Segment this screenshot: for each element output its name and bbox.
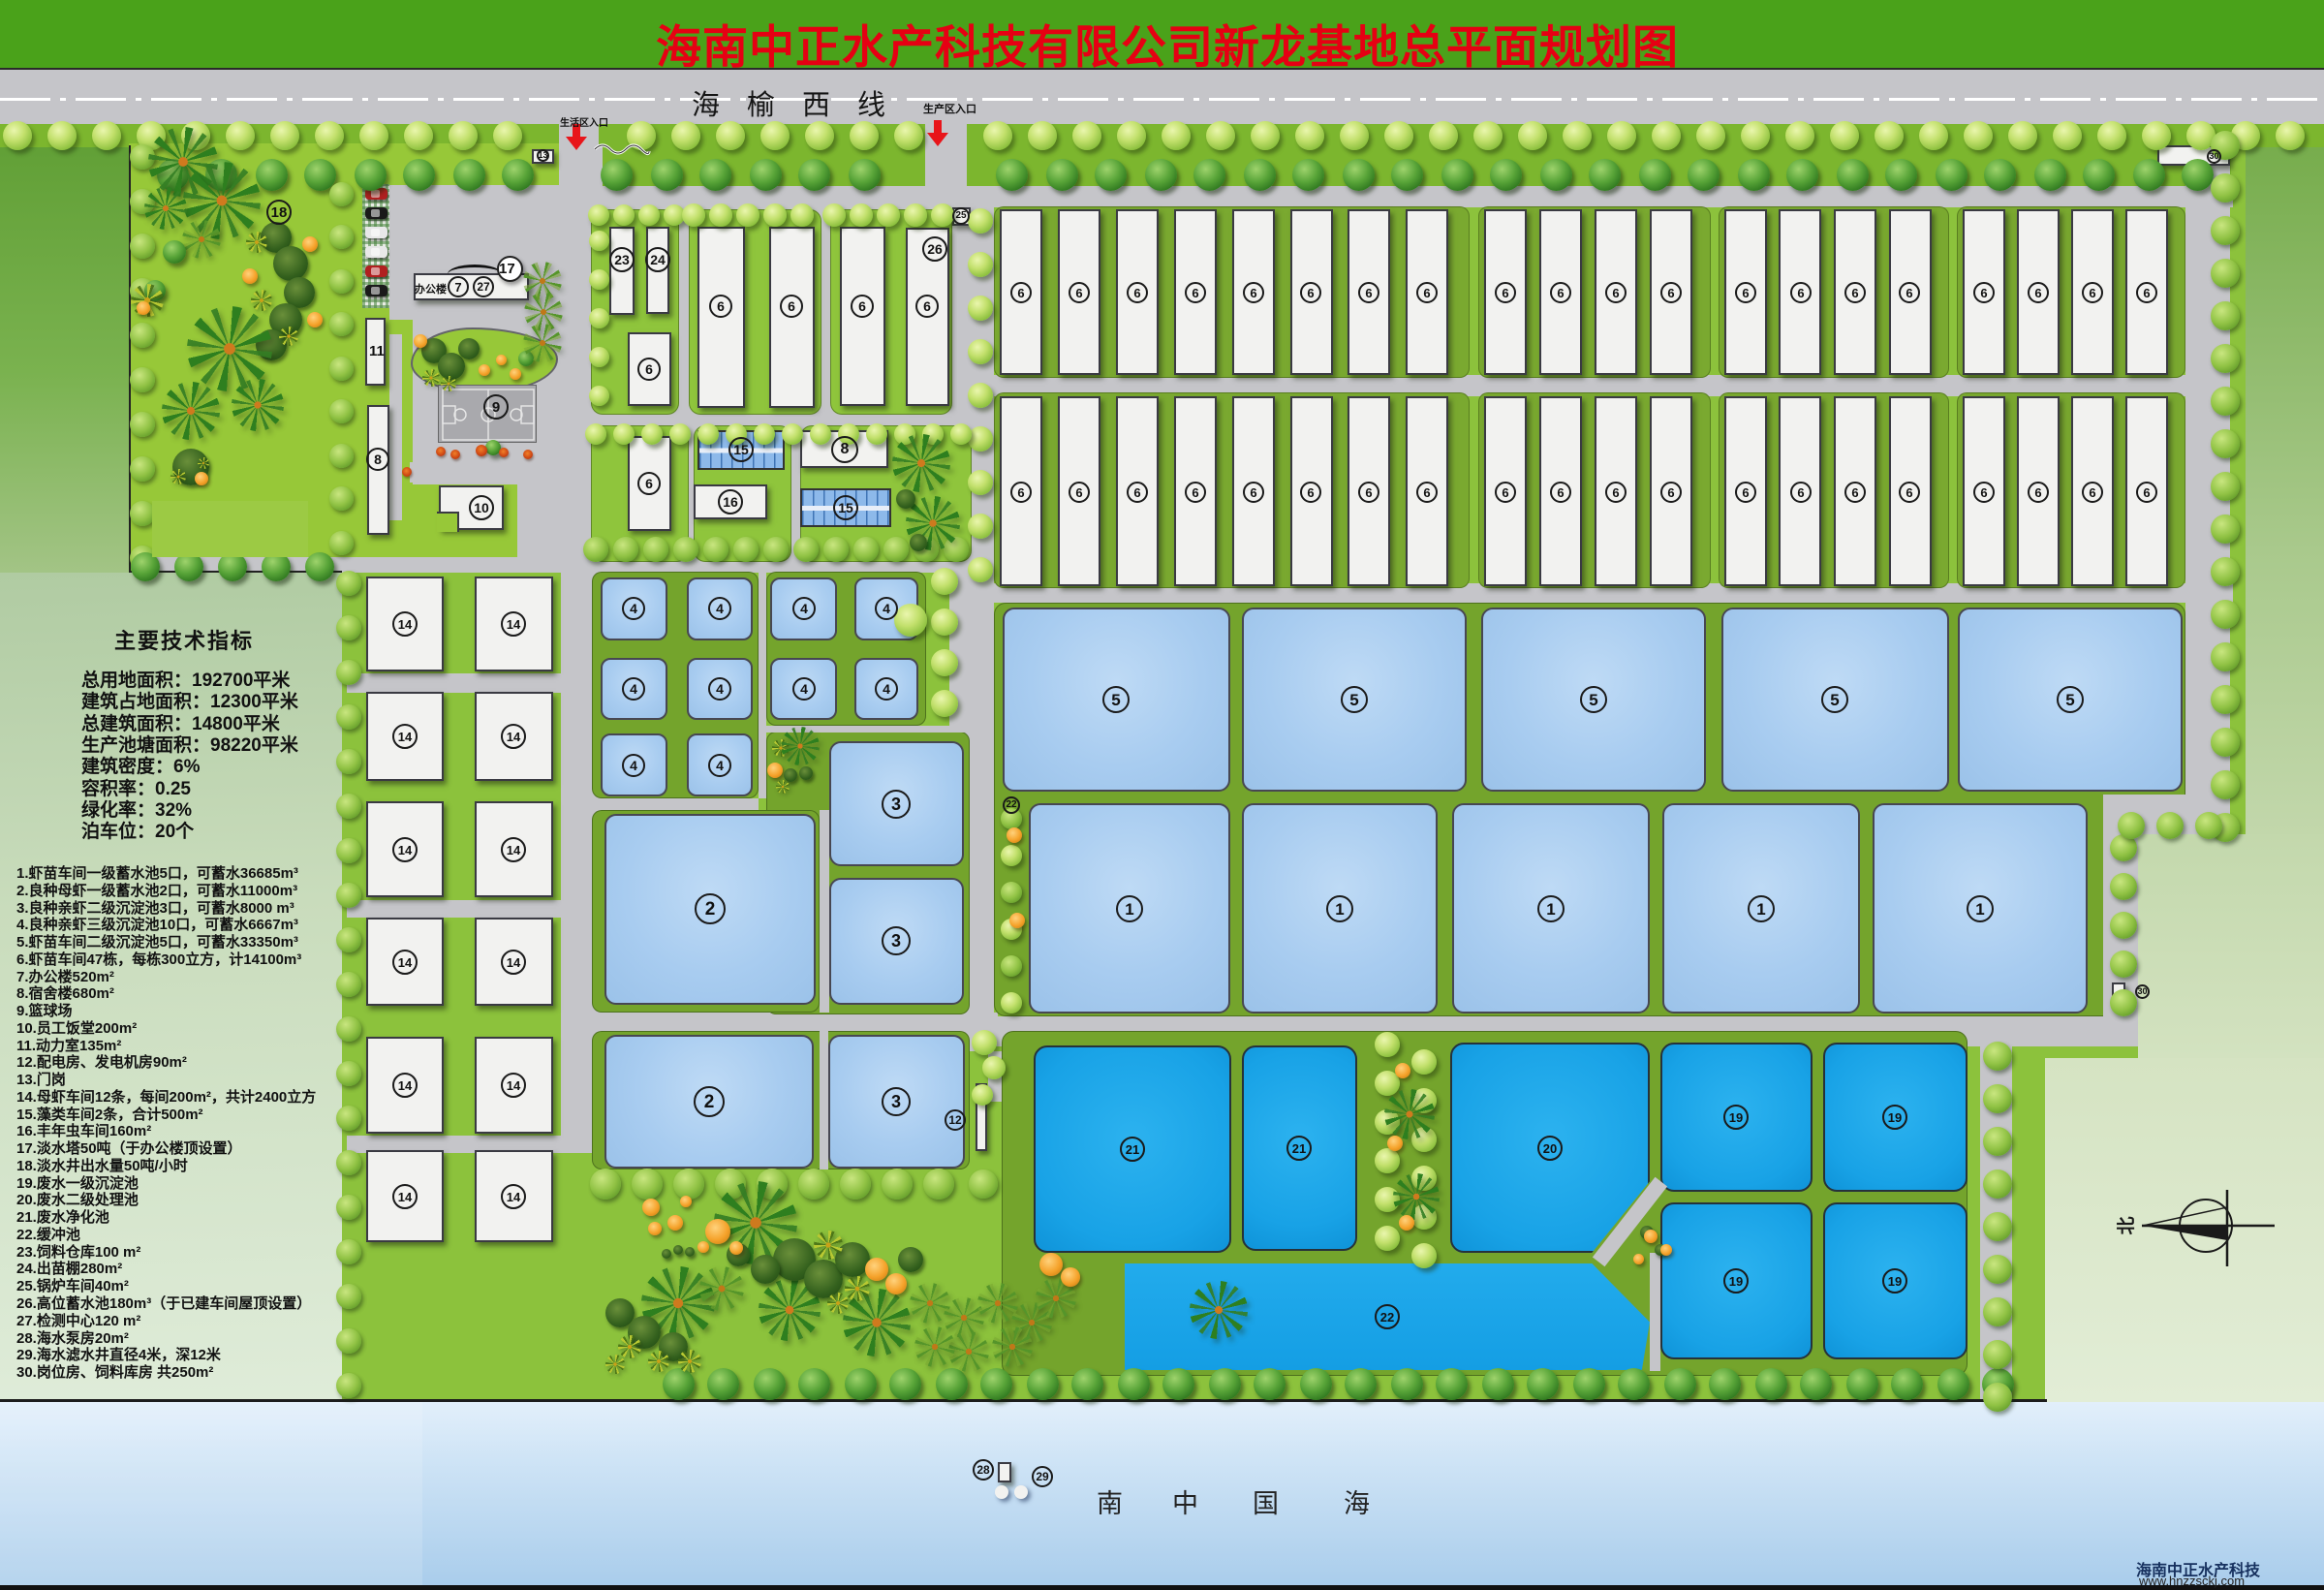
svg-text:北: 北 — [2116, 1216, 2137, 1234]
